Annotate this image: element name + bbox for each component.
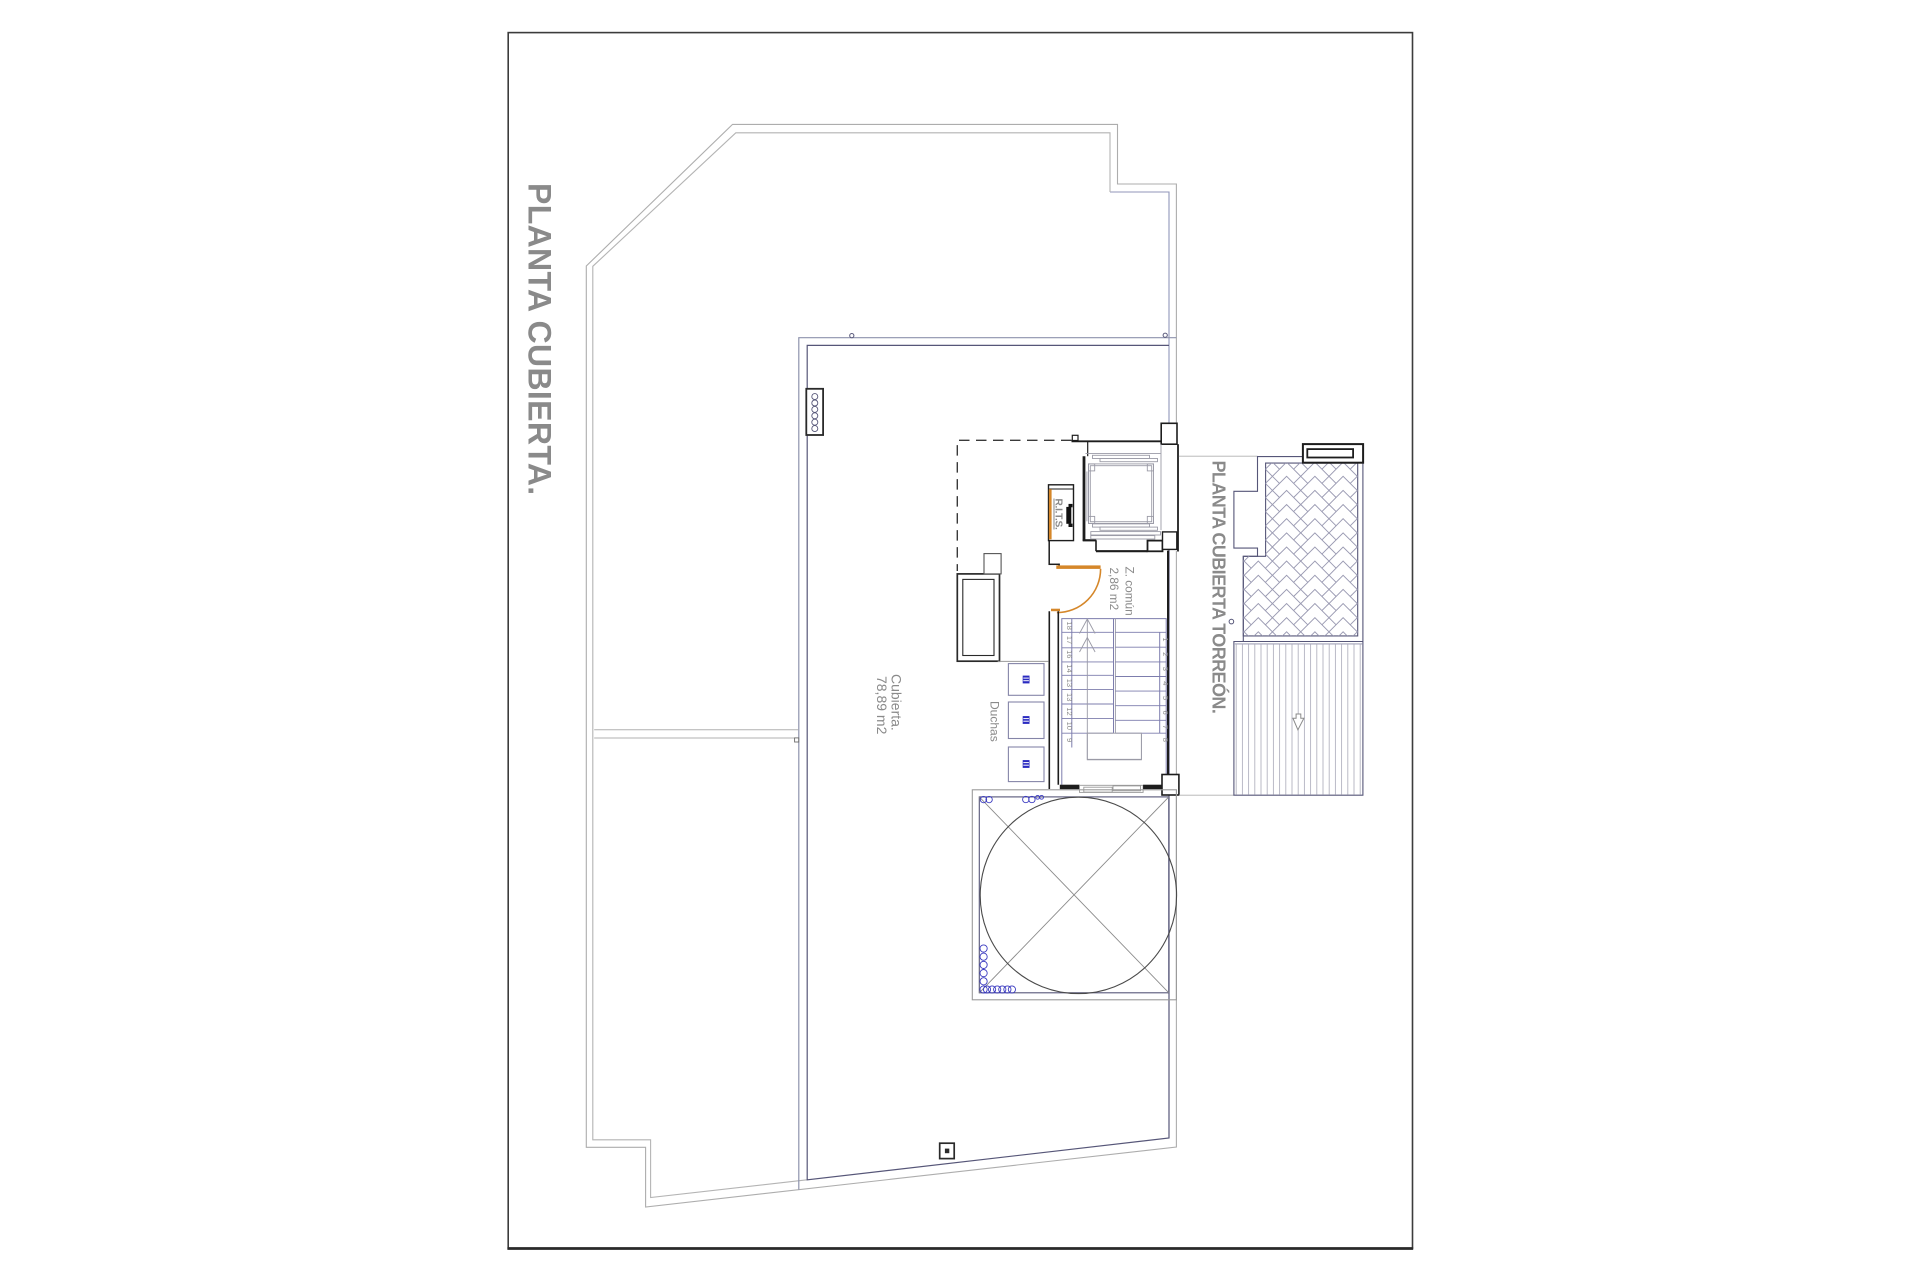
svg-text:Duchas: Duchas (988, 701, 1002, 742)
svg-text:8: 8 (1161, 738, 1170, 742)
svg-text:78,89 m2: 78,89 m2 (874, 676, 890, 735)
svg-text:18: 18 (1065, 622, 1074, 630)
svg-text:14: 14 (1065, 664, 1074, 672)
svg-text:3: 3 (1161, 667, 1170, 671)
svg-text:10: 10 (1065, 722, 1074, 730)
svg-text:16: 16 (1065, 650, 1074, 658)
svg-text:PLANTA CUBIERTA TORREÓN.: PLANTA CUBIERTA TORREÓN. (1209, 461, 1230, 714)
svg-text:6: 6 (1161, 711, 1170, 715)
svg-text:9: 9 (1065, 738, 1074, 742)
svg-text:13: 13 (1065, 693, 1074, 701)
svg-text:13: 13 (1065, 679, 1074, 687)
svg-text:4: 4 (1161, 681, 1170, 685)
svg-text:Z. común: Z. común (1123, 567, 1137, 616)
svg-text:R.I.T.S.: R.I.T.S. (1053, 499, 1064, 530)
svg-text:1: 1 (1161, 637, 1170, 641)
svg-text:2: 2 (1161, 652, 1170, 656)
svg-text:PLANTA CUBIERTA.: PLANTA CUBIERTA. (522, 183, 558, 496)
svg-text:7: 7 (1161, 725, 1170, 729)
svg-text:5: 5 (1161, 696, 1170, 700)
svg-text:12: 12 (1065, 707, 1074, 715)
svg-text:17: 17 (1065, 636, 1074, 644)
svg-text:2,86 m2: 2,86 m2 (1107, 568, 1121, 611)
